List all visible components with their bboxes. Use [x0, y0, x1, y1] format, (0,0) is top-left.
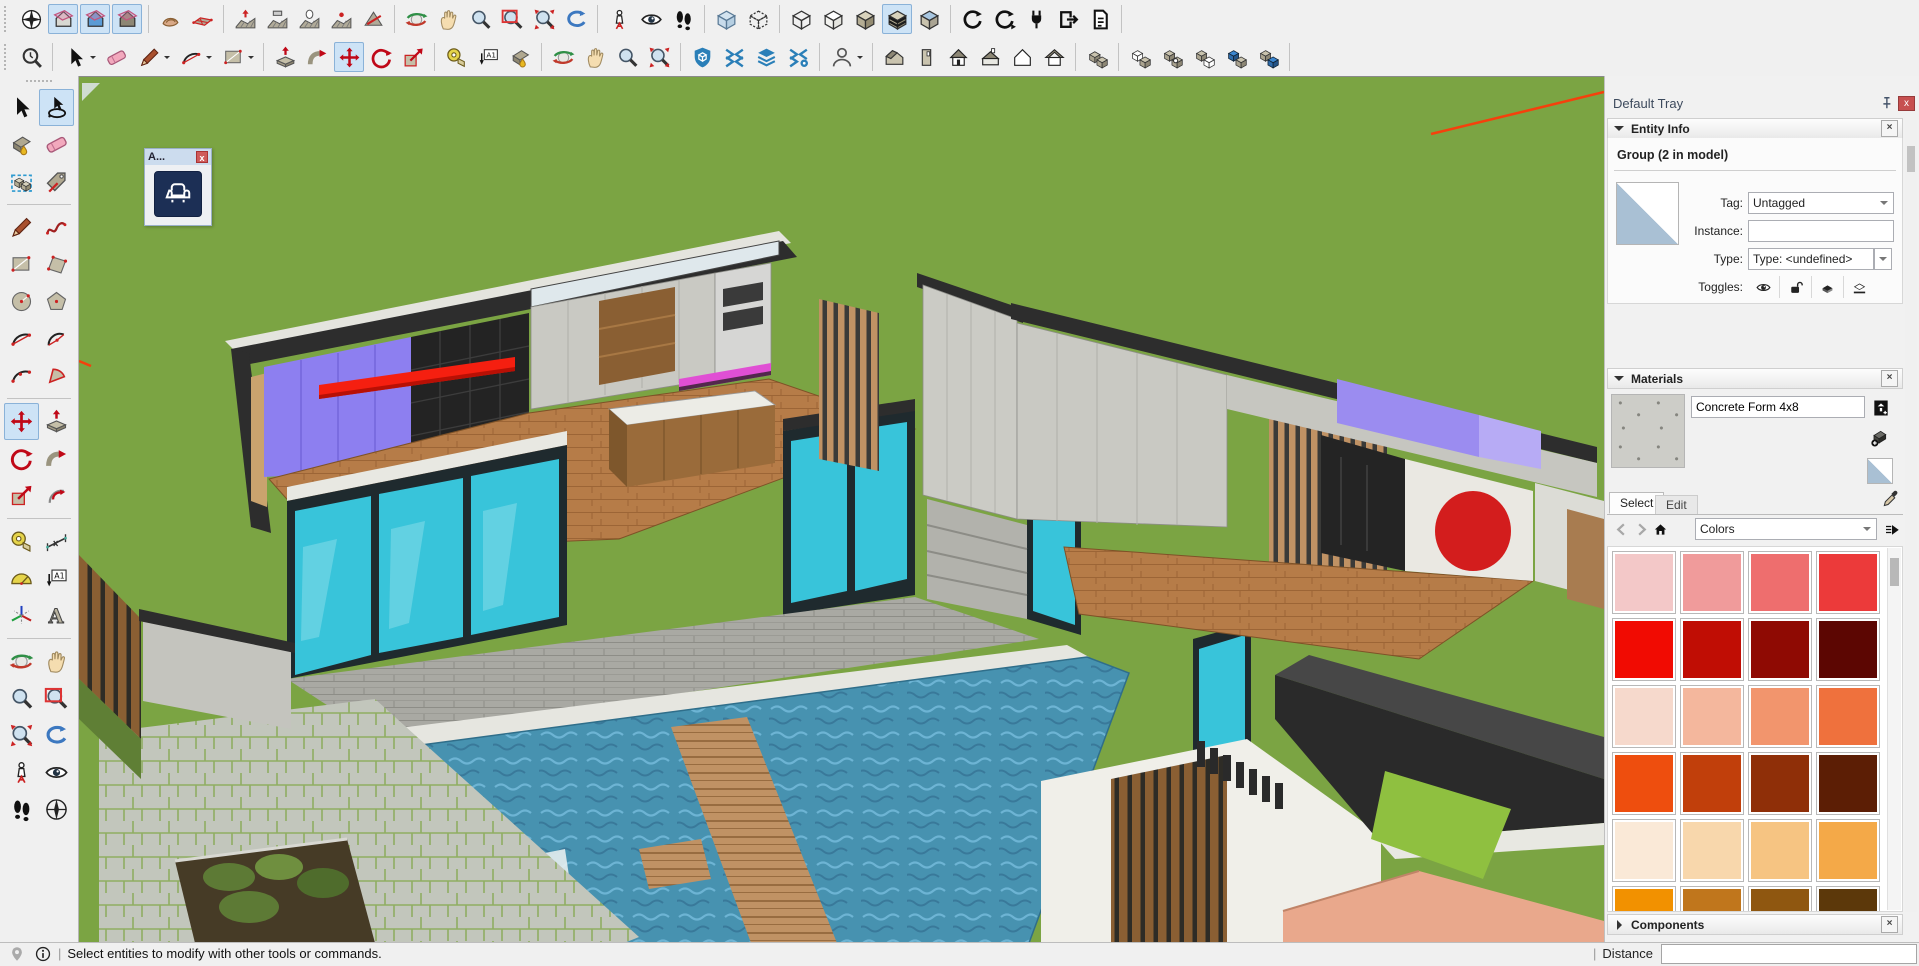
- entity-info-title: Entity Info: [1631, 122, 1690, 136]
- toolbar-separator: [434, 43, 435, 71]
- tag-label: Tag:: [1608, 196, 1748, 210]
- tray-title: Default Tray: [1613, 96, 1683, 111]
- tool-orbit[interactable]: [548, 42, 578, 72]
- tool-monochrome[interactable]: [914, 4, 944, 34]
- tool-axes[interactable]: [4, 597, 39, 634]
- tool-sync[interactable]: [957, 4, 987, 34]
- tool-ext-layers[interactable]: [751, 42, 781, 72]
- expand-triangle-icon[interactable]: [1617, 920, 1627, 930]
- color-swatch[interactable]: [1680, 618, 1744, 681]
- entity-info-header[interactable]: Entity Info ×: [1607, 118, 1903, 139]
- tool-zoom-window[interactable]: [497, 4, 527, 34]
- sample-paint-eyedropper-icon[interactable]: [1881, 488, 1901, 508]
- tool-zoom-window[interactable]: [39, 680, 74, 717]
- svg-text:A1: A1: [54, 572, 64, 581]
- toggles-label: Toggles:: [1608, 280, 1748, 294]
- close-icon[interactable]: ×: [1881, 370, 1898, 387]
- material-name-field[interactable]: [1691, 396, 1865, 418]
- toolbar-row-1: [0, 0, 1919, 38]
- tool-view-left[interactable]: [1039, 42, 1069, 72]
- toolbar-grip[interactable]: [4, 44, 11, 70]
- tray-scrollbar[interactable]: [1905, 120, 1917, 912]
- tool-select[interactable]: [59, 42, 99, 72]
- toolbar-separator: [263, 43, 264, 71]
- collapse-triangle-icon[interactable]: [1614, 376, 1624, 386]
- svg-text:A: A: [48, 605, 65, 628]
- materials-header[interactable]: Materials ×: [1607, 368, 1903, 389]
- toolbar-separator: [819, 43, 820, 71]
- tool-line[interactable]: [133, 42, 173, 72]
- tool-walk[interactable]: [4, 791, 39, 828]
- tool-protractor[interactable]: [4, 560, 39, 597]
- tool-shaded-textures[interactable]: [882, 4, 912, 34]
- default-material-swatch[interactable]: [1867, 458, 1893, 484]
- toolbar-separator: [704, 5, 705, 33]
- instance-field[interactable]: [1748, 220, 1894, 242]
- tool-cubes-edit[interactable]: [1082, 42, 1112, 72]
- info-icon[interactable]: [34, 945, 52, 963]
- toolbar-separator: [148, 5, 149, 33]
- tool-ext-swap[interactable]: [719, 42, 749, 72]
- tool-pan[interactable]: [39, 643, 74, 680]
- tool-move[interactable]: [4, 403, 39, 440]
- tool-push-pull[interactable]: [39, 403, 74, 440]
- color-swatch[interactable]: [1612, 685, 1676, 748]
- tool-export[interactable]: [1053, 4, 1083, 34]
- unlocked-icon[interactable]: [1780, 276, 1812, 298]
- collection-value: Colors: [1700, 522, 1735, 536]
- left-tool-palette: A1A: [0, 76, 79, 942]
- tool-zoom-extents[interactable]: [4, 717, 39, 754]
- tool-view-right[interactable]: [911, 42, 941, 72]
- toolbar-separator: [7, 398, 71, 399]
- color-swatch[interactable]: [1612, 618, 1676, 681]
- tool-zoom-extents[interactable]: [644, 42, 674, 72]
- tool-position-camera[interactable]: [4, 754, 39, 791]
- measurements-input[interactable]: [1661, 944, 1917, 964]
- tool-rotated-rectangle[interactable]: [39, 246, 74, 283]
- tool-orbit[interactable]: [401, 4, 431, 34]
- tool-pan[interactable]: [433, 4, 463, 34]
- tool-text[interactable]: A1: [39, 560, 74, 597]
- tool-circle[interactable]: [4, 283, 39, 320]
- toolbar-separator: [394, 5, 395, 33]
- toolbar-separator: [779, 5, 780, 33]
- tool-follow-me[interactable]: [302, 42, 332, 72]
- tool-section-fill[interactable]: [112, 4, 142, 34]
- chevron-down-icon[interactable]: [90, 56, 96, 62]
- materials-nav-row: Colors: [1607, 518, 1903, 544]
- tool-ext-shield[interactable]: [687, 42, 717, 72]
- tool-offset[interactable]: [39, 477, 74, 514]
- armchair-icon: [163, 178, 193, 211]
- color-swatch[interactable]: [1748, 685, 1812, 748]
- color-swatch[interactable]: [1748, 819, 1812, 882]
- tool-sandbox-from-scratch[interactable]: [187, 4, 217, 34]
- tool-follow-me[interactable]: [39, 440, 74, 477]
- tool-zoom[interactable]: [465, 4, 495, 34]
- tool-look-around[interactable]: [39, 754, 74, 791]
- tool-shaded[interactable]: [850, 4, 880, 34]
- viewport-canvas[interactable]: [79, 77, 1604, 943]
- color-swatch[interactable]: [1748, 752, 1812, 815]
- chevron-down-icon[interactable]: [248, 56, 254, 62]
- toolbar-separator: [1289, 43, 1290, 71]
- type-dropdown-button[interactable]: [1874, 248, 1892, 270]
- tool-pie[interactable]: [39, 357, 74, 394]
- instance-label: Instance:: [1608, 224, 1748, 238]
- color-swatch[interactable]: [1680, 551, 1744, 614]
- color-swatch[interactable]: [1612, 886, 1676, 912]
- tool-section-plane[interactable]: [48, 4, 78, 34]
- cast-shadows-icon[interactable]: [1812, 276, 1844, 298]
- tool-lasso[interactable]: [39, 89, 74, 126]
- tool-back-edges[interactable]: [743, 4, 773, 34]
- tray-close-icon[interactable]: x: [1898, 96, 1915, 111]
- tool-view-iso[interactable]: [879, 42, 909, 72]
- floating-toolbar-titlebar[interactable]: A... x: [145, 149, 211, 165]
- components-title: Components: [1631, 918, 1704, 932]
- pin-icon[interactable]: [1878, 95, 1894, 111]
- components-header[interactable]: Components ×: [1607, 914, 1903, 935]
- tool-dimension[interactable]: [39, 523, 74, 560]
- toolbar-separator: [872, 43, 873, 71]
- tool-walk[interactable]: [668, 4, 698, 34]
- color-swatch[interactable]: [1816, 551, 1880, 614]
- tool-rotate[interactable]: [366, 42, 396, 72]
- tool-rectangle[interactable]: [4, 246, 39, 283]
- toolbar-separator: [7, 638, 71, 639]
- tab-edit[interactable]: Edit: [1655, 495, 1698, 514]
- details-arrow-icon[interactable]: [1881, 519, 1903, 543]
- tool-cubes-b[interactable]: [1157, 42, 1187, 72]
- color-swatch[interactable]: [1816, 752, 1880, 815]
- tool-scale[interactable]: [4, 477, 39, 514]
- floating-extension-toolbar[interactable]: A... x: [144, 148, 212, 226]
- tool-position-camera[interactable]: [604, 4, 634, 34]
- furniture-tool-button[interactable]: [154, 171, 202, 217]
- tool-ext-gear[interactable]: [783, 42, 813, 72]
- tool-previous-view[interactable]: [561, 4, 591, 34]
- tool-add-detail[interactable]: [326, 4, 356, 34]
- toolbar-separator: [7, 204, 71, 205]
- entity-summary: Group (2 in model): [1617, 148, 1728, 162]
- tool-cubes-c[interactable]: [1189, 42, 1219, 72]
- tag-dropdown[interactable]: Untagged: [1748, 192, 1894, 214]
- materials-title: Materials: [1631, 372, 1683, 386]
- tag-value: Untagged: [1753, 196, 1805, 210]
- status-message: Select entities to modify with other too…: [67, 946, 381, 961]
- toolbar-separator: [680, 43, 681, 71]
- tool-rectangle[interactable]: [217, 42, 257, 72]
- tool-smoove[interactable]: [230, 4, 260, 34]
- toolbar-row-2: A1: [0, 38, 1919, 76]
- status-separator: |: [58, 946, 61, 961]
- tool-paint-bucket[interactable]: [505, 42, 535, 72]
- tool-select[interactable]: [4, 89, 39, 126]
- color-swatch[interactable]: [1612, 819, 1676, 882]
- secondary-pane-icon[interactable]: [1869, 396, 1893, 420]
- tool-flip-edge[interactable]: [358, 4, 388, 34]
- tool-zoom-extents[interactable]: [529, 4, 559, 34]
- tool-sync-run[interactable]: [989, 4, 1019, 34]
- tool-scale[interactable]: [398, 42, 428, 72]
- color-swatch[interactable]: [1612, 551, 1676, 614]
- type-label: Type:: [1608, 252, 1748, 266]
- tool-look-around[interactable]: [636, 4, 666, 34]
- tool-make-component[interactable]: [4, 163, 39, 200]
- status-separator: |: [1593, 946, 1596, 961]
- tool-section-cuts[interactable]: [80, 4, 110, 34]
- tool-eraser[interactable]: [101, 42, 131, 72]
- tool-polygon[interactable]: [39, 283, 74, 320]
- tool-wireframe[interactable]: [786, 4, 816, 34]
- toolbar-separator: [597, 5, 598, 33]
- tool-tag[interactable]: [39, 163, 74, 200]
- tool-report[interactable]: [1085, 4, 1115, 34]
- toolbar-separator: [950, 5, 951, 33]
- tool-zoom[interactable]: [612, 42, 642, 72]
- tool-view-front[interactable]: [943, 42, 973, 72]
- color-swatch[interactable]: [1680, 886, 1744, 912]
- color-swatch[interactable]: [1748, 886, 1812, 912]
- tool-arc-2pt[interactable]: [175, 42, 215, 72]
- toolbar-separator: [7, 518, 71, 519]
- color-swatch-list: [1607, 546, 1903, 912]
- receive-shadows-icon[interactable]: [1844, 276, 1875, 298]
- chevron-down-icon[interactable]: [206, 56, 212, 62]
- tool-arc-2pt[interactable]: [4, 320, 39, 357]
- tool-cubes-d[interactable]: [1221, 42, 1251, 72]
- visible-eye-icon[interactable]: [1748, 276, 1780, 298]
- create-material-icon[interactable]: [1867, 426, 1891, 450]
- color-swatch[interactable]: [1816, 819, 1880, 882]
- distance-label: Distance: [1602, 946, 1653, 961]
- chevron-down-icon: [1863, 527, 1871, 535]
- material-preview[interactable]: [1611, 394, 1685, 468]
- tool-drape[interactable]: [294, 4, 324, 34]
- tool-cubes-e[interactable]: [1253, 42, 1283, 72]
- close-icon[interactable]: ×: [1881, 916, 1898, 933]
- tool-plugin[interactable]: [1021, 4, 1051, 34]
- swatch-scrollbar[interactable]: [1887, 548, 1901, 910]
- color-swatch[interactable]: [1748, 551, 1812, 614]
- tool-line[interactable]: [4, 209, 39, 246]
- tool-tape-measure[interactable]: [4, 523, 39, 560]
- geolocation-icon[interactable]: [8, 945, 26, 963]
- tool-orbit[interactable]: [4, 643, 39, 680]
- color-swatch[interactable]: [1816, 685, 1880, 748]
- tool-eraser[interactable]: [39, 126, 74, 163]
- status-bar: | Select entities to modify with other t…: [0, 942, 1919, 964]
- tool-tape-measure[interactable]: [441, 42, 471, 72]
- tool-rotate[interactable]: [4, 440, 39, 477]
- tool-view-top[interactable]: [975, 42, 1005, 72]
- tool-hidden-line[interactable]: [818, 4, 848, 34]
- toolbar-separator: [1121, 5, 1122, 33]
- color-swatch[interactable]: [1680, 752, 1744, 815]
- toolbar-separator: [52, 43, 53, 71]
- forward-arrow-icon[interactable]: [1633, 520, 1650, 538]
- toolbar-separator: [1075, 43, 1076, 71]
- default-tray: Default Tray x Entity Info × Group (2 in…: [1604, 76, 1919, 942]
- toolbar-separator: [541, 43, 542, 71]
- materials-tabs: Select Edit: [1607, 492, 1903, 515]
- color-swatch[interactable]: [1680, 819, 1744, 882]
- color-swatch[interactable]: [1816, 886, 1880, 912]
- chevron-down-icon: [1880, 201, 1888, 209]
- toolbar-separator: [223, 5, 224, 33]
- toolbar-grip[interactable]: [26, 80, 52, 87]
- tool-person[interactable]: [826, 42, 866, 72]
- color-swatch[interactable]: [1816, 618, 1880, 681]
- tool-compass[interactable]: [16, 4, 46, 34]
- chevron-down-icon[interactable]: [164, 56, 170, 62]
- tool-paint-bucket[interactable]: [4, 126, 39, 163]
- tool-sandbox-from-contours[interactable]: [155, 4, 185, 34]
- tool-zoom[interactable]: [4, 680, 39, 717]
- tool-push-pull[interactable]: [270, 42, 300, 72]
- collection-dropdown[interactable]: Colors: [1695, 518, 1877, 540]
- tool-freehand[interactable]: [39, 209, 74, 246]
- tool-previous-view[interactable]: [39, 717, 74, 754]
- floating-toolbar-title: A...: [148, 151, 165, 163]
- collapse-triangle-icon[interactable]: [1614, 126, 1624, 136]
- back-arrow-icon[interactable]: [1613, 520, 1630, 538]
- tool-stamp[interactable]: [262, 4, 292, 34]
- toolbar-grip[interactable]: [4, 6, 11, 32]
- toolbar-separator: [1118, 43, 1119, 71]
- tool-text[interactable]: A1: [473, 42, 503, 72]
- color-swatch[interactable]: [1680, 685, 1744, 748]
- tool-view-back[interactable]: [1007, 42, 1037, 72]
- tool-north-compass[interactable]: [39, 791, 74, 828]
- tool-arc[interactable]: [39, 320, 74, 357]
- tool-pan[interactable]: [580, 42, 610, 72]
- entity-info-body: Group (2 in model) Tag: Untagged Instanc…: [1607, 138, 1903, 304]
- tool-search[interactable]: [16, 42, 46, 72]
- tool-arc-3pt[interactable]: [4, 357, 39, 394]
- type-dropdown[interactable]: Type: <undefined>: [1748, 248, 1874, 270]
- type-value: Type: <undefined>: [1753, 252, 1852, 266]
- tool-xray[interactable]: [711, 4, 741, 34]
- svg-text:A1: A1: [486, 50, 496, 59]
- tool-3d-text[interactable]: A: [39, 597, 74, 634]
- home-icon[interactable]: [1652, 520, 1669, 538]
- close-icon[interactable]: x: [196, 151, 208, 163]
- tool-move[interactable]: [334, 42, 364, 72]
- tool-cubes-a[interactable]: [1125, 42, 1155, 72]
- color-swatch[interactable]: [1748, 618, 1812, 681]
- chevron-down-icon[interactable]: [857, 56, 863, 62]
- chevron-down-icon: [1879, 257, 1887, 265]
- model-viewport[interactable]: [79, 76, 1604, 942]
- close-icon[interactable]: ×: [1881, 120, 1898, 137]
- color-swatch[interactable]: [1612, 752, 1676, 815]
